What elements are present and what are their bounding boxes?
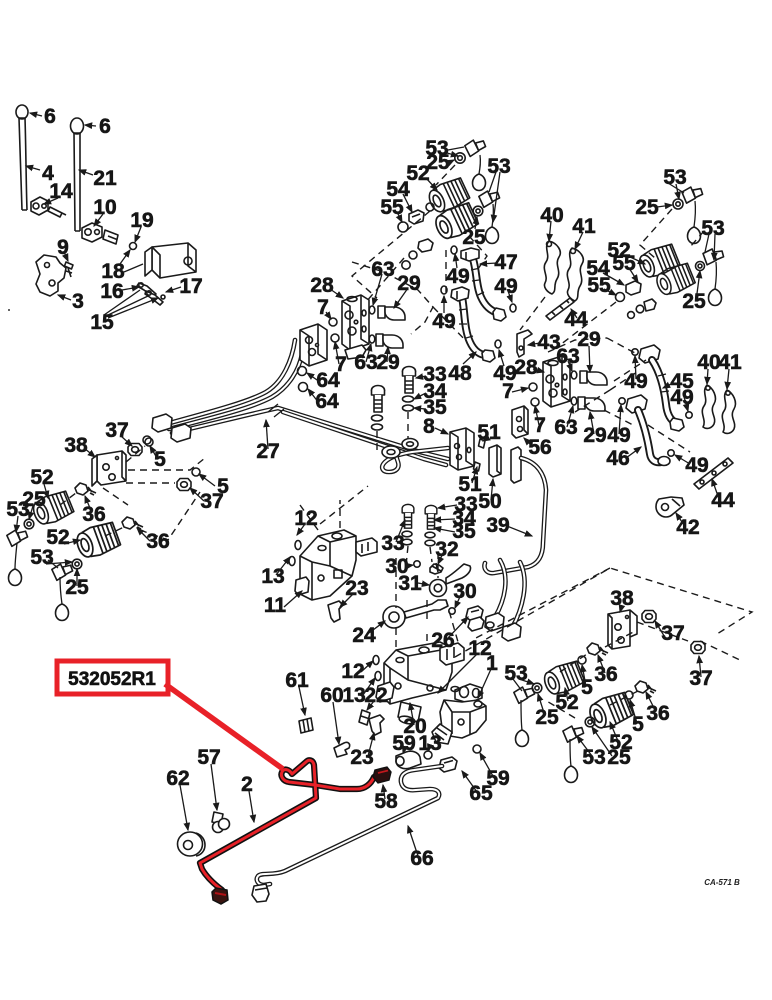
svg-text:63: 63	[554, 416, 577, 439]
svg-text:23: 23	[345, 577, 368, 600]
svg-text:21: 21	[93, 167, 117, 190]
svg-text:39: 39	[486, 514, 509, 537]
svg-text:53: 53	[504, 662, 527, 685]
svg-text:10: 10	[93, 196, 116, 219]
svg-text:25: 25	[607, 746, 631, 769]
svg-text:52: 52	[406, 162, 429, 185]
svg-text:11: 11	[264, 594, 287, 617]
svg-text:46: 46	[606, 447, 629, 470]
svg-text:19: 19	[130, 209, 153, 232]
svg-text:36: 36	[646, 702, 669, 725]
svg-text:7: 7	[317, 296, 329, 319]
svg-text:9: 9	[57, 236, 69, 259]
svg-text:49: 49	[685, 454, 708, 477]
svg-text:49: 49	[494, 275, 517, 298]
svg-text:58: 58	[374, 790, 398, 813]
svg-text:5: 5	[154, 448, 166, 471]
svg-text:12: 12	[294, 507, 317, 530]
svg-text:29: 29	[397, 272, 420, 295]
svg-text:53: 53	[30, 546, 53, 569]
svg-text:16: 16	[100, 280, 123, 303]
svg-text:37: 37	[661, 622, 684, 645]
svg-text:37: 37	[105, 419, 128, 442]
svg-text:41: 41	[572, 215, 596, 238]
svg-text:37: 37	[200, 490, 223, 513]
svg-text:49: 49	[446, 265, 469, 288]
svg-text:28: 28	[514, 356, 538, 379]
svg-text:25: 25	[682, 290, 706, 313]
svg-text:53: 53	[663, 166, 686, 189]
svg-text:2: 2	[241, 773, 253, 796]
svg-text:36: 36	[146, 530, 169, 553]
svg-text:49: 49	[670, 386, 693, 409]
svg-text:61: 61	[285, 669, 309, 692]
svg-text:51: 51	[477, 421, 501, 444]
svg-text:25: 25	[635, 196, 659, 219]
svg-text:60: 60	[320, 684, 343, 707]
svg-text:49: 49	[432, 310, 455, 333]
svg-text:17: 17	[179, 275, 202, 298]
svg-text:43: 43	[537, 331, 560, 354]
svg-text:48: 48	[448, 362, 472, 385]
svg-text:6: 6	[44, 105, 56, 128]
svg-text:26: 26	[431, 629, 454, 652]
svg-text:40: 40	[697, 351, 720, 374]
svg-text:5: 5	[581, 676, 593, 699]
svg-text:55: 55	[380, 196, 404, 219]
svg-text:66: 66	[410, 847, 433, 870]
svg-text:63: 63	[371, 258, 394, 281]
svg-text:13: 13	[418, 732, 441, 755]
svg-text:8: 8	[423, 415, 435, 438]
svg-text:3: 3	[72, 290, 84, 313]
svg-text:52: 52	[30, 466, 53, 489]
svg-text:38: 38	[64, 434, 88, 457]
svg-text:55: 55	[612, 252, 636, 275]
svg-text:44: 44	[711, 489, 735, 512]
svg-text:57: 57	[197, 746, 220, 769]
svg-text:532052R1: 532052R1	[68, 669, 156, 690]
svg-text:25: 25	[462, 226, 486, 249]
svg-text:64: 64	[315, 390, 339, 413]
svg-text:5: 5	[632, 713, 644, 736]
svg-text:47: 47	[494, 251, 517, 274]
svg-text:62: 62	[166, 767, 189, 790]
svg-text:CA-571 B: CA-571 B	[704, 878, 740, 887]
svg-text:36: 36	[594, 663, 617, 686]
svg-text:63: 63	[354, 351, 377, 374]
svg-text:56: 56	[528, 436, 551, 459]
svg-text:1: 1	[486, 652, 498, 675]
svg-text:29: 29	[583, 424, 606, 447]
svg-text:25: 25	[426, 151, 450, 174]
svg-text:64: 64	[316, 369, 340, 392]
svg-text:24: 24	[352, 624, 376, 647]
svg-text:53: 53	[701, 217, 724, 240]
svg-text:50: 50	[478, 490, 501, 513]
svg-text:6: 6	[99, 115, 111, 138]
svg-text:53: 53	[582, 746, 605, 769]
svg-text:30: 30	[453, 580, 476, 603]
svg-text:28: 28	[310, 274, 334, 297]
svg-text:55: 55	[587, 274, 611, 297]
svg-text:13: 13	[342, 684, 365, 707]
svg-text:36: 36	[82, 503, 105, 526]
svg-text:33: 33	[381, 532, 404, 555]
svg-text:7: 7	[534, 414, 546, 437]
svg-text:41: 41	[718, 351, 742, 374]
svg-text:32: 32	[435, 538, 458, 561]
svg-text:40: 40	[540, 204, 563, 227]
